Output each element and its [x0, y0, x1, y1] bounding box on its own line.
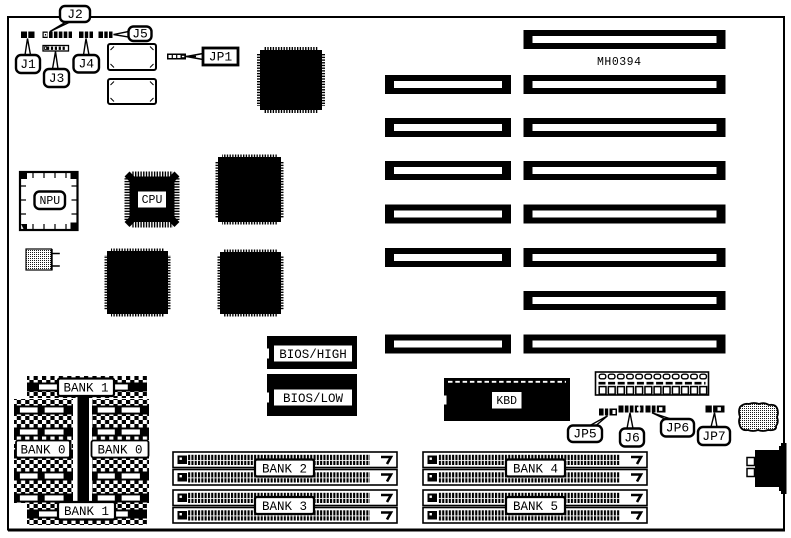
svg-text:JP1: JP1	[209, 49, 233, 64]
svg-text:BIOS/HIGH: BIOS/HIGH	[279, 348, 347, 362]
svg-text:BANK 4: BANK 4	[513, 462, 558, 476]
svg-text:J2: J2	[67, 7, 83, 22]
svg-text:JP6: JP6	[666, 421, 689, 436]
svg-text:BANK 1: BANK 1	[64, 505, 109, 519]
svg-text:J5: J5	[132, 27, 148, 42]
svg-text:J4: J4	[78, 57, 94, 72]
svg-text:KBD: KBD	[496, 395, 517, 408]
svg-text:CPU: CPU	[142, 194, 163, 207]
svg-text:BANK 1: BANK 1	[63, 381, 108, 395]
svg-text:MH0394: MH0394	[597, 56, 641, 69]
svg-text:BANK 0: BANK 0	[97, 443, 142, 457]
svg-text:BANK 5: BANK 5	[513, 500, 558, 514]
svg-text:JP5: JP5	[573, 427, 596, 442]
svg-text:BANK 0: BANK 0	[20, 443, 65, 457]
svg-text:J6: J6	[624, 430, 640, 445]
svg-text:BANK 3: BANK 3	[262, 500, 307, 514]
svg-text:JP7: JP7	[702, 429, 725, 444]
svg-text:BANK 2: BANK 2	[262, 462, 307, 476]
svg-text:BIOS/LOW: BIOS/LOW	[283, 392, 344, 406]
svg-text:NPU: NPU	[39, 195, 60, 208]
svg-text:J1: J1	[20, 57, 36, 72]
svg-text:J3: J3	[49, 71, 65, 86]
